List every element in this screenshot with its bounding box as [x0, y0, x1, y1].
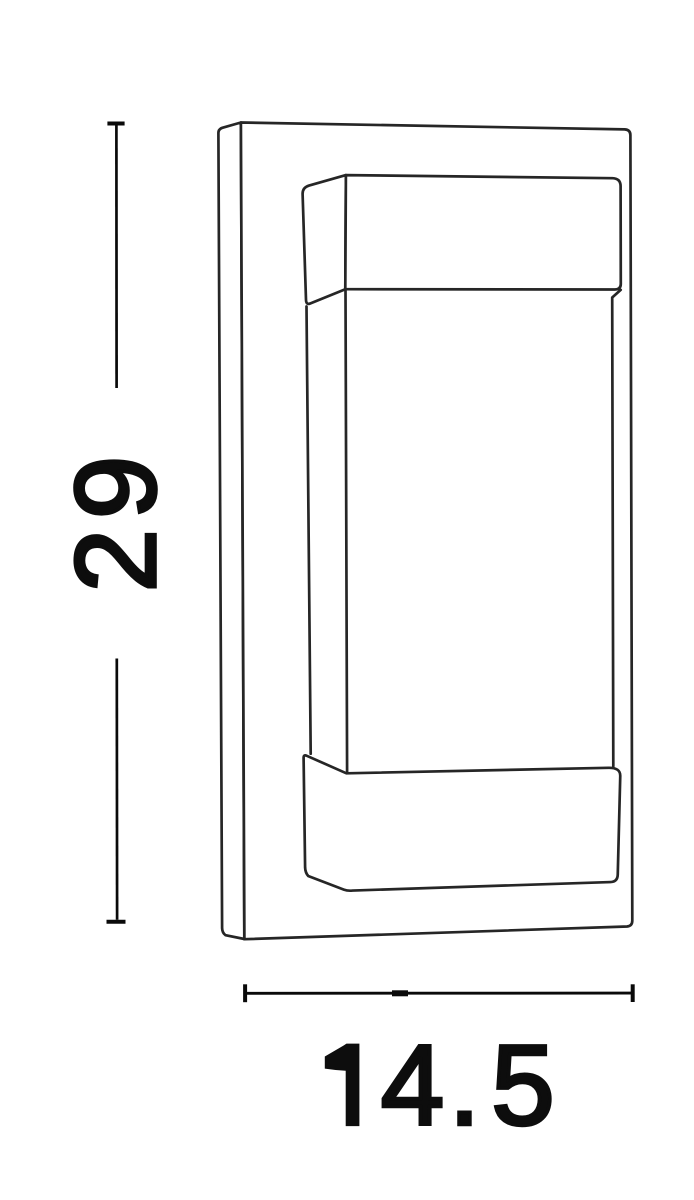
- svg-text:9: 9: [53, 456, 180, 519]
- svg-text:.: .: [449, 1023, 481, 1150]
- svg-text:5: 5: [491, 1023, 554, 1150]
- svg-text:2: 2: [53, 529, 180, 592]
- svg-text:4: 4: [381, 1023, 444, 1150]
